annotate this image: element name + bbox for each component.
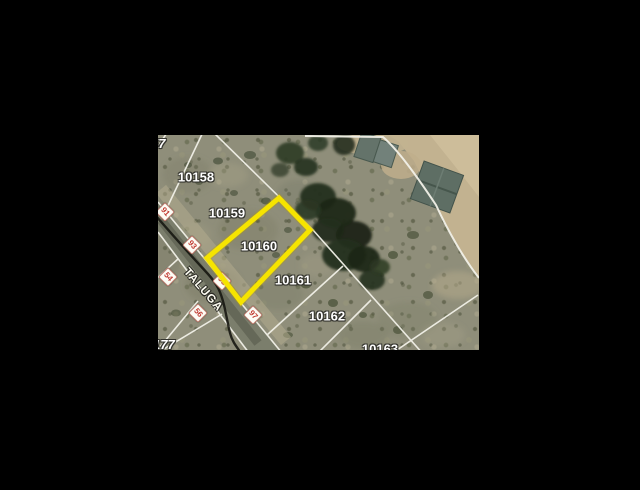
parcel-label: 10163 xyxy=(362,342,398,351)
parcel-label: 10159 xyxy=(209,206,245,221)
parcel-label: 10162 xyxy=(309,309,345,324)
parcel-label: 10161 xyxy=(275,273,311,288)
letterbox-background: 91 93 95 97 54 56 10158 10159 10160 1016… xyxy=(0,0,640,490)
clipped-parcel-label-bottom-left: 177 xyxy=(158,337,175,350)
aerial-map: 91 93 95 97 54 56 10158 10159 10160 1016… xyxy=(158,135,479,350)
parcel-label: 10158 xyxy=(178,170,214,185)
parcel-label-highlighted: 10160 xyxy=(241,239,277,254)
clipped-parcel-label-top-left: 57 xyxy=(158,136,165,151)
